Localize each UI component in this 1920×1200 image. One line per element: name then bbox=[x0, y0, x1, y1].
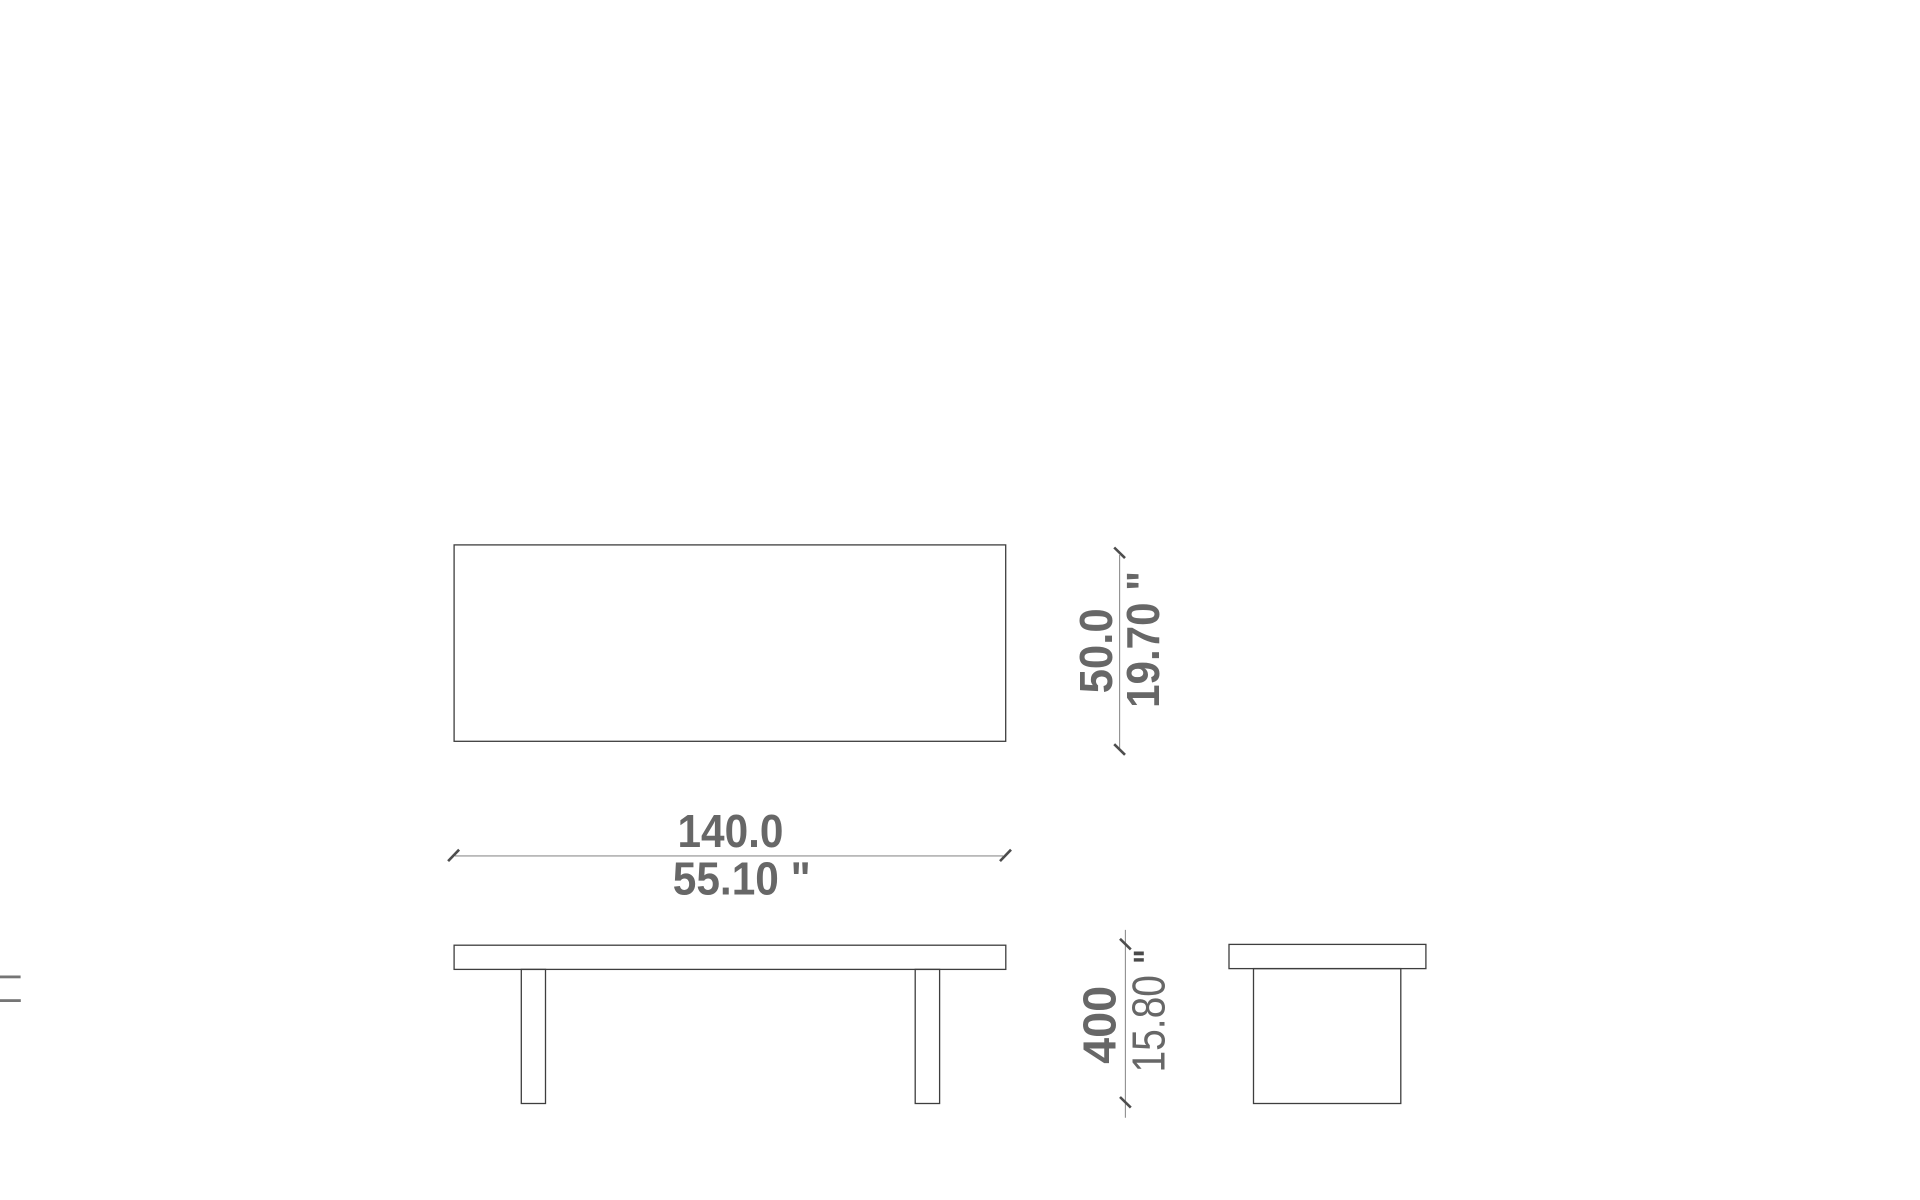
svg-text:15.80: 15.80 bbox=[1123, 975, 1175, 1073]
svg-text:19.70 ": 19.70 " bbox=[1117, 571, 1169, 708]
svg-text:55.10 ": 55.10 " bbox=[673, 853, 811, 905]
svg-text:400: 400 bbox=[1074, 986, 1126, 1064]
svg-text:140.0: 140.0 bbox=[678, 805, 784, 857]
svg-text:50.0: 50.0 bbox=[1070, 608, 1122, 693]
